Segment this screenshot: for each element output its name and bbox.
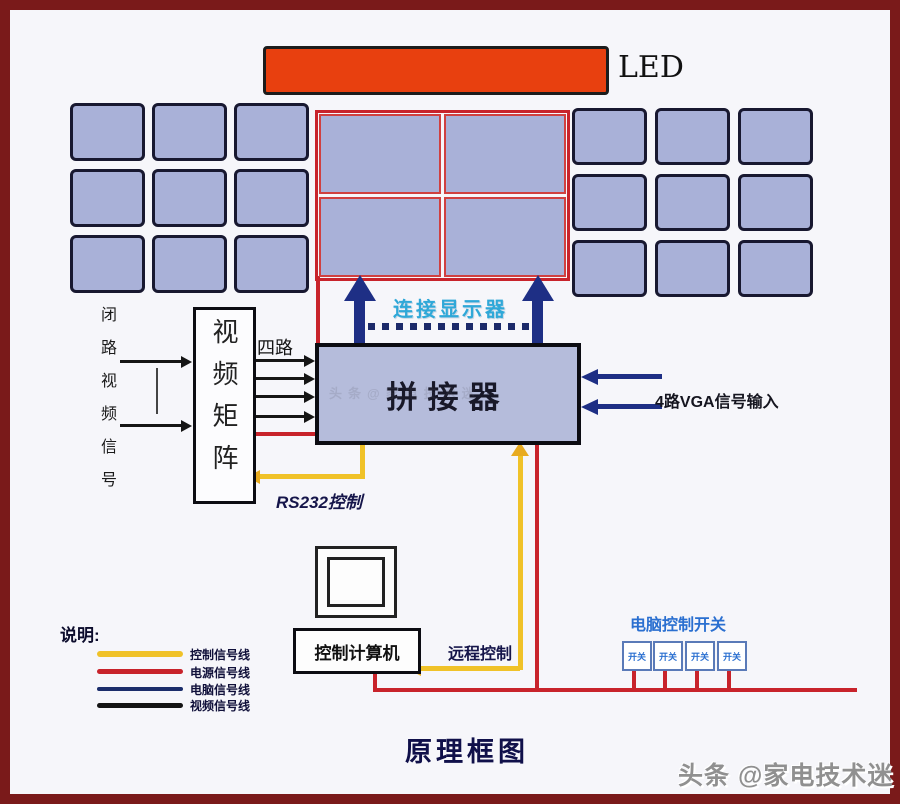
legend-label-control: 控制信号线	[190, 646, 250, 663]
left-monitor-grid	[70, 103, 309, 293]
monitor-screen	[572, 174, 647, 231]
monitor-screen	[152, 235, 227, 293]
monitor-screen	[738, 240, 813, 297]
monitor-screen	[319, 197, 441, 277]
computer-monitor-icon	[315, 546, 397, 618]
vga-input-arrow-2	[597, 404, 662, 409]
monitor-screen	[655, 174, 730, 231]
diagram-title: 原理框图	[367, 730, 567, 769]
monitor-screen	[152, 169, 227, 227]
cctv-input-arrow-1	[120, 360, 182, 363]
rs232-line-vertical	[360, 439, 365, 479]
dotted-connection-line	[368, 323, 536, 330]
screenshot-frame: LED 连接显示器 头条@家电技术迷 拼接器 视频矩阵 闭路视频信号	[0, 0, 900, 804]
remote-line-horizontal	[420, 666, 520, 671]
power-switch-label: 电脑控制开关	[630, 611, 726, 635]
diagram-canvas: LED 连接显示器 头条@家电技术迷 拼接器 视频矩阵 闭路视频信号	[10, 10, 890, 794]
video-arrow-3	[252, 395, 305, 398]
video-matrix-label: 视频矩阵	[206, 318, 243, 486]
vga-input-label: 4路VGA信号输入	[655, 388, 779, 412]
monitor-screen	[152, 103, 227, 161]
led-bar	[263, 46, 609, 95]
control-computer-label: 控制计算机	[315, 639, 400, 664]
power-line-splicer	[535, 439, 539, 690]
right-monitor-grid	[572, 108, 813, 297]
monitor-screen	[70, 169, 145, 227]
legend-line-power	[97, 669, 183, 674]
legend-line-video	[97, 703, 183, 708]
legend-label-power: 电源信号线	[190, 664, 250, 681]
watermark: 头条 @家电技术迷	[678, 756, 893, 792]
monitor-screen	[234, 235, 309, 293]
legend-label-computer: 电脑信号线	[190, 681, 250, 698]
led-label: LED	[618, 50, 684, 85]
spliced-display-wall	[315, 110, 570, 281]
monitor-screen	[70, 235, 145, 293]
remote-line-vertical	[518, 454, 523, 670]
legend-label-video: 视频信号线	[190, 697, 250, 714]
power-switch-3: 开关	[685, 641, 715, 671]
monitor-screen	[572, 108, 647, 165]
cctv-input-arrow-2	[120, 424, 182, 427]
monitor-screen	[444, 114, 566, 194]
video-arrow-4	[252, 415, 305, 418]
monitor-screen	[234, 103, 309, 161]
cctv-input-label: 闭路视频信号	[94, 306, 118, 516]
remote-control-label: 远程控制	[448, 640, 512, 664]
faint-watermark: 头条@家电技术迷	[329, 383, 481, 402]
display-signal-up-arrow-left	[354, 301, 365, 344]
power-switch-1: 开关	[622, 641, 652, 671]
legend-line-computer	[97, 687, 183, 691]
computer-monitor-screen	[327, 557, 385, 607]
power-switch-4: 开关	[717, 641, 747, 671]
rs232-label: RS232控制	[276, 488, 362, 513]
video-matrix-box: 视频矩阵	[193, 307, 256, 504]
four-channel-label: 四路	[257, 334, 293, 360]
monitor-screen	[738, 174, 813, 231]
power-switch-2: 开关	[653, 641, 683, 671]
legend-line-control	[97, 651, 183, 657]
connect-display-label: 连接显示器	[393, 293, 508, 322]
video-arrow-2	[252, 377, 305, 380]
monitor-screen	[444, 197, 566, 277]
vga-input-arrow-1	[597, 374, 662, 379]
power-line-display-horizontal	[252, 432, 320, 436]
rs232-line-horizontal	[258, 474, 365, 479]
monitor-screen	[655, 108, 730, 165]
control-computer-box: 控制计算机	[293, 628, 421, 674]
monitor-screen	[572, 240, 647, 297]
splicer-box: 头条@家电技术迷 拼接器	[315, 343, 581, 445]
monitor-screen	[70, 103, 145, 161]
monitor-screen	[738, 108, 813, 165]
ellipsis-separator	[156, 368, 158, 414]
power-bus	[373, 688, 857, 692]
monitor-screen	[234, 169, 309, 227]
monitor-screen	[655, 240, 730, 297]
monitor-screen	[319, 114, 441, 194]
legend-heading: 说明:	[60, 621, 100, 646]
